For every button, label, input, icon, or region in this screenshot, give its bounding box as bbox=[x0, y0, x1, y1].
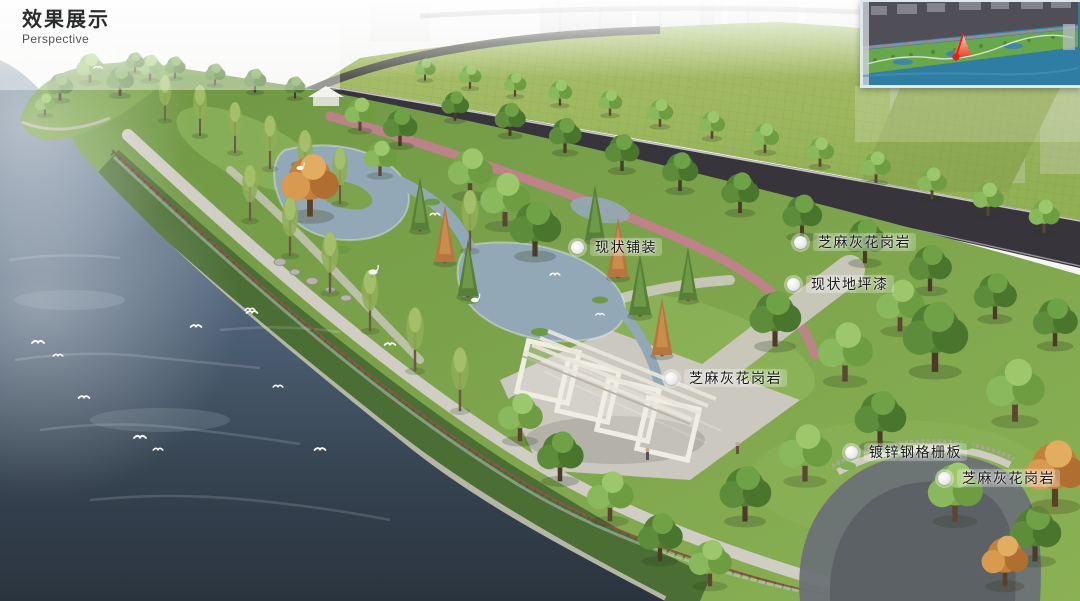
title-block: 效果展示 Perspective bbox=[22, 9, 110, 46]
callout-galvanized-steel-grating: 镀锌钢格栅板 bbox=[845, 443, 967, 461]
callout-existing-paving: 现状铺装 bbox=[571, 238, 662, 256]
callout-label: 芝麻灰花岗岩 bbox=[684, 369, 787, 387]
site-plan-map bbox=[863, 2, 1078, 85]
callout-sesame-gray-granite-road: 芝麻灰花岗岩 bbox=[794, 233, 916, 251]
callout-marker-icon bbox=[665, 372, 678, 385]
callout-label: 芝麻灰花岗岩 bbox=[957, 469, 1060, 487]
callout-marker-icon bbox=[938, 472, 951, 485]
callout-sesame-gray-granite-plaza: 芝麻灰花岗岩 bbox=[665, 369, 787, 387]
callout-existing-floor-paint: 现状地坪漆 bbox=[787, 275, 894, 293]
page-subtitle: Perspective bbox=[22, 32, 110, 46]
callout-label: 现状铺装 bbox=[590, 238, 662, 256]
callout-sesame-gray-granite-wall: 芝麻灰花岗岩 bbox=[938, 469, 1060, 487]
callout-marker-icon bbox=[571, 241, 584, 254]
perspective-slide: 效果展示 Perspective bbox=[0, 0, 1080, 601]
perspective-rendering bbox=[0, 0, 1080, 601]
site-plan-inset bbox=[860, 0, 1080, 88]
callout-marker-icon bbox=[794, 236, 807, 249]
callout-label: 芝麻灰花岗岩 bbox=[813, 233, 916, 251]
page-title: 效果展示 bbox=[22, 9, 110, 32]
callout-marker-icon bbox=[787, 278, 800, 291]
callout-marker-icon bbox=[845, 446, 858, 459]
callout-label: 镀锌钢格栅板 bbox=[864, 443, 967, 461]
callout-label: 现状地坪漆 bbox=[806, 275, 894, 293]
